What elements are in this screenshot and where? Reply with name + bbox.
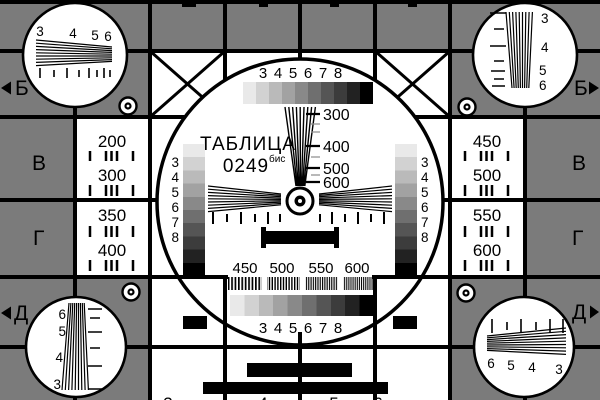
wedge-number: 6 (58, 307, 66, 322)
center-bullseye-icon (287, 188, 313, 214)
panel-value: 200 (98, 132, 126, 151)
wedge-number: 4 (541, 40, 549, 55)
black-marker-left (183, 316, 207, 329)
edge-letter-right-d: Д (572, 301, 586, 324)
bullseye-icon (458, 285, 475, 302)
burst-label: 450 (232, 260, 257, 277)
wedge-number: 5 (507, 358, 515, 373)
stair-label: 7 (171, 215, 179, 230)
stair-label: 6 (171, 200, 179, 215)
test-card: 3 4 5 6 3 4 5 6 6 5 4 3 6 5 4 3 Б В Г (0, 0, 600, 400)
stair-label: 8 (421, 230, 429, 245)
wedge-number: 6 (539, 78, 547, 93)
card-number: 0249 (223, 156, 269, 177)
frequency-label: 300 (323, 107, 350, 124)
gray-step-label: 7 (319, 320, 327, 337)
stair-label: 4 (421, 170, 429, 185)
wedge-number: 3 (555, 362, 563, 377)
card-number-suffix: бис (269, 153, 285, 165)
panel-value: 400 (98, 241, 126, 260)
wedge-number: 3 (541, 11, 549, 26)
wedge-number: 3 (53, 377, 61, 392)
edge-letter-right-v: В (572, 152, 586, 175)
burst-label: 600 (344, 260, 369, 277)
stair-label: 3 (171, 155, 179, 170)
wedge-number: 6 (487, 356, 495, 371)
corner-circle-bottom-right: 6 5 4 3 (474, 297, 574, 397)
burst-segment (343, 277, 374, 290)
panel-value: 500 (473, 166, 501, 185)
panel-value: 450 (473, 132, 501, 151)
bullseye-icon (120, 98, 137, 115)
burst-label: 550 (308, 260, 333, 277)
bullseye-icon (123, 284, 140, 301)
short-black-bar (247, 363, 352, 377)
gray-step-label: 3 (259, 320, 267, 337)
burst-segment (267, 277, 300, 290)
gray-step-label: 8 (334, 65, 342, 82)
gray-step-label: 7 (319, 65, 327, 82)
edge-letter-left-d: Д (14, 302, 28, 325)
corner-circle-bottom-left: 6 5 4 3 (26, 297, 126, 397)
wedge-number: 5 (539, 63, 547, 78)
long-black-bar (203, 382, 388, 394)
grayscale-step-column (183, 144, 205, 276)
corner-circle-top-right: 3 4 5 6 (473, 3, 577, 107)
edge-letter-right-g: Г (572, 227, 583, 250)
burst-label: 500 (269, 260, 294, 277)
gray-step-label: 4 (274, 320, 282, 337)
burst-segment (305, 277, 338, 290)
stair-label: 8 (171, 230, 179, 245)
grayscale-step-column (395, 144, 417, 276)
wedge-number: 6 (104, 29, 112, 44)
clipped-digit: 3 (163, 394, 172, 400)
panel-value: 600 (473, 241, 501, 260)
edge-letter-left-g: Г (33, 227, 44, 250)
panel-value: 300 (98, 166, 126, 185)
clipped-digit: 6 (373, 394, 382, 400)
frequency-label: 400 (323, 139, 350, 156)
gray-step-label: 5 (289, 320, 297, 337)
grayscale-step-strip (243, 82, 373, 104)
wedge-number: 3 (36, 24, 44, 39)
clipped-digit: 4 (258, 394, 267, 400)
card-title: ТАБЛИЦА (200, 134, 296, 155)
edge-letter-left-v: В (32, 152, 46, 175)
stair-label: 3 (421, 155, 429, 170)
wedge-number: 5 (58, 324, 66, 339)
edge-letter-right-b: Б (574, 77, 588, 100)
gray-step-label: 4 (274, 65, 282, 82)
stair-label: 7 (421, 215, 429, 230)
bullseye-icon (459, 99, 476, 116)
grayscale-step-strip (230, 295, 374, 316)
panel-value: 350 (98, 206, 126, 225)
wedge-number: 4 (528, 360, 536, 375)
gray-step-label: 6 (304, 65, 312, 82)
wedge-number: 5 (91, 28, 99, 43)
stair-label: 6 (421, 200, 429, 215)
gray-step-label: 5 (289, 65, 297, 82)
wedge-number: 4 (69, 26, 77, 41)
stair-label: 4 (171, 170, 179, 185)
clipped-digit: 5 (329, 394, 338, 400)
gray-step-label: 3 (259, 65, 267, 82)
stair-label: 5 (421, 185, 429, 200)
corner-circle-top-left: 3 4 5 6 (23, 3, 127, 107)
gray-step-label: 8 (334, 320, 342, 337)
frequency-label: 600 (323, 175, 350, 192)
stair-label: 5 (171, 185, 179, 200)
gray-step-label: 6 (304, 320, 312, 337)
wedge-number: 4 (55, 350, 63, 365)
edge-letter-left-b: Б (15, 77, 29, 100)
black-marker-right (393, 316, 417, 329)
burst-segment (228, 277, 262, 290)
panel-value: 550 (473, 206, 501, 225)
